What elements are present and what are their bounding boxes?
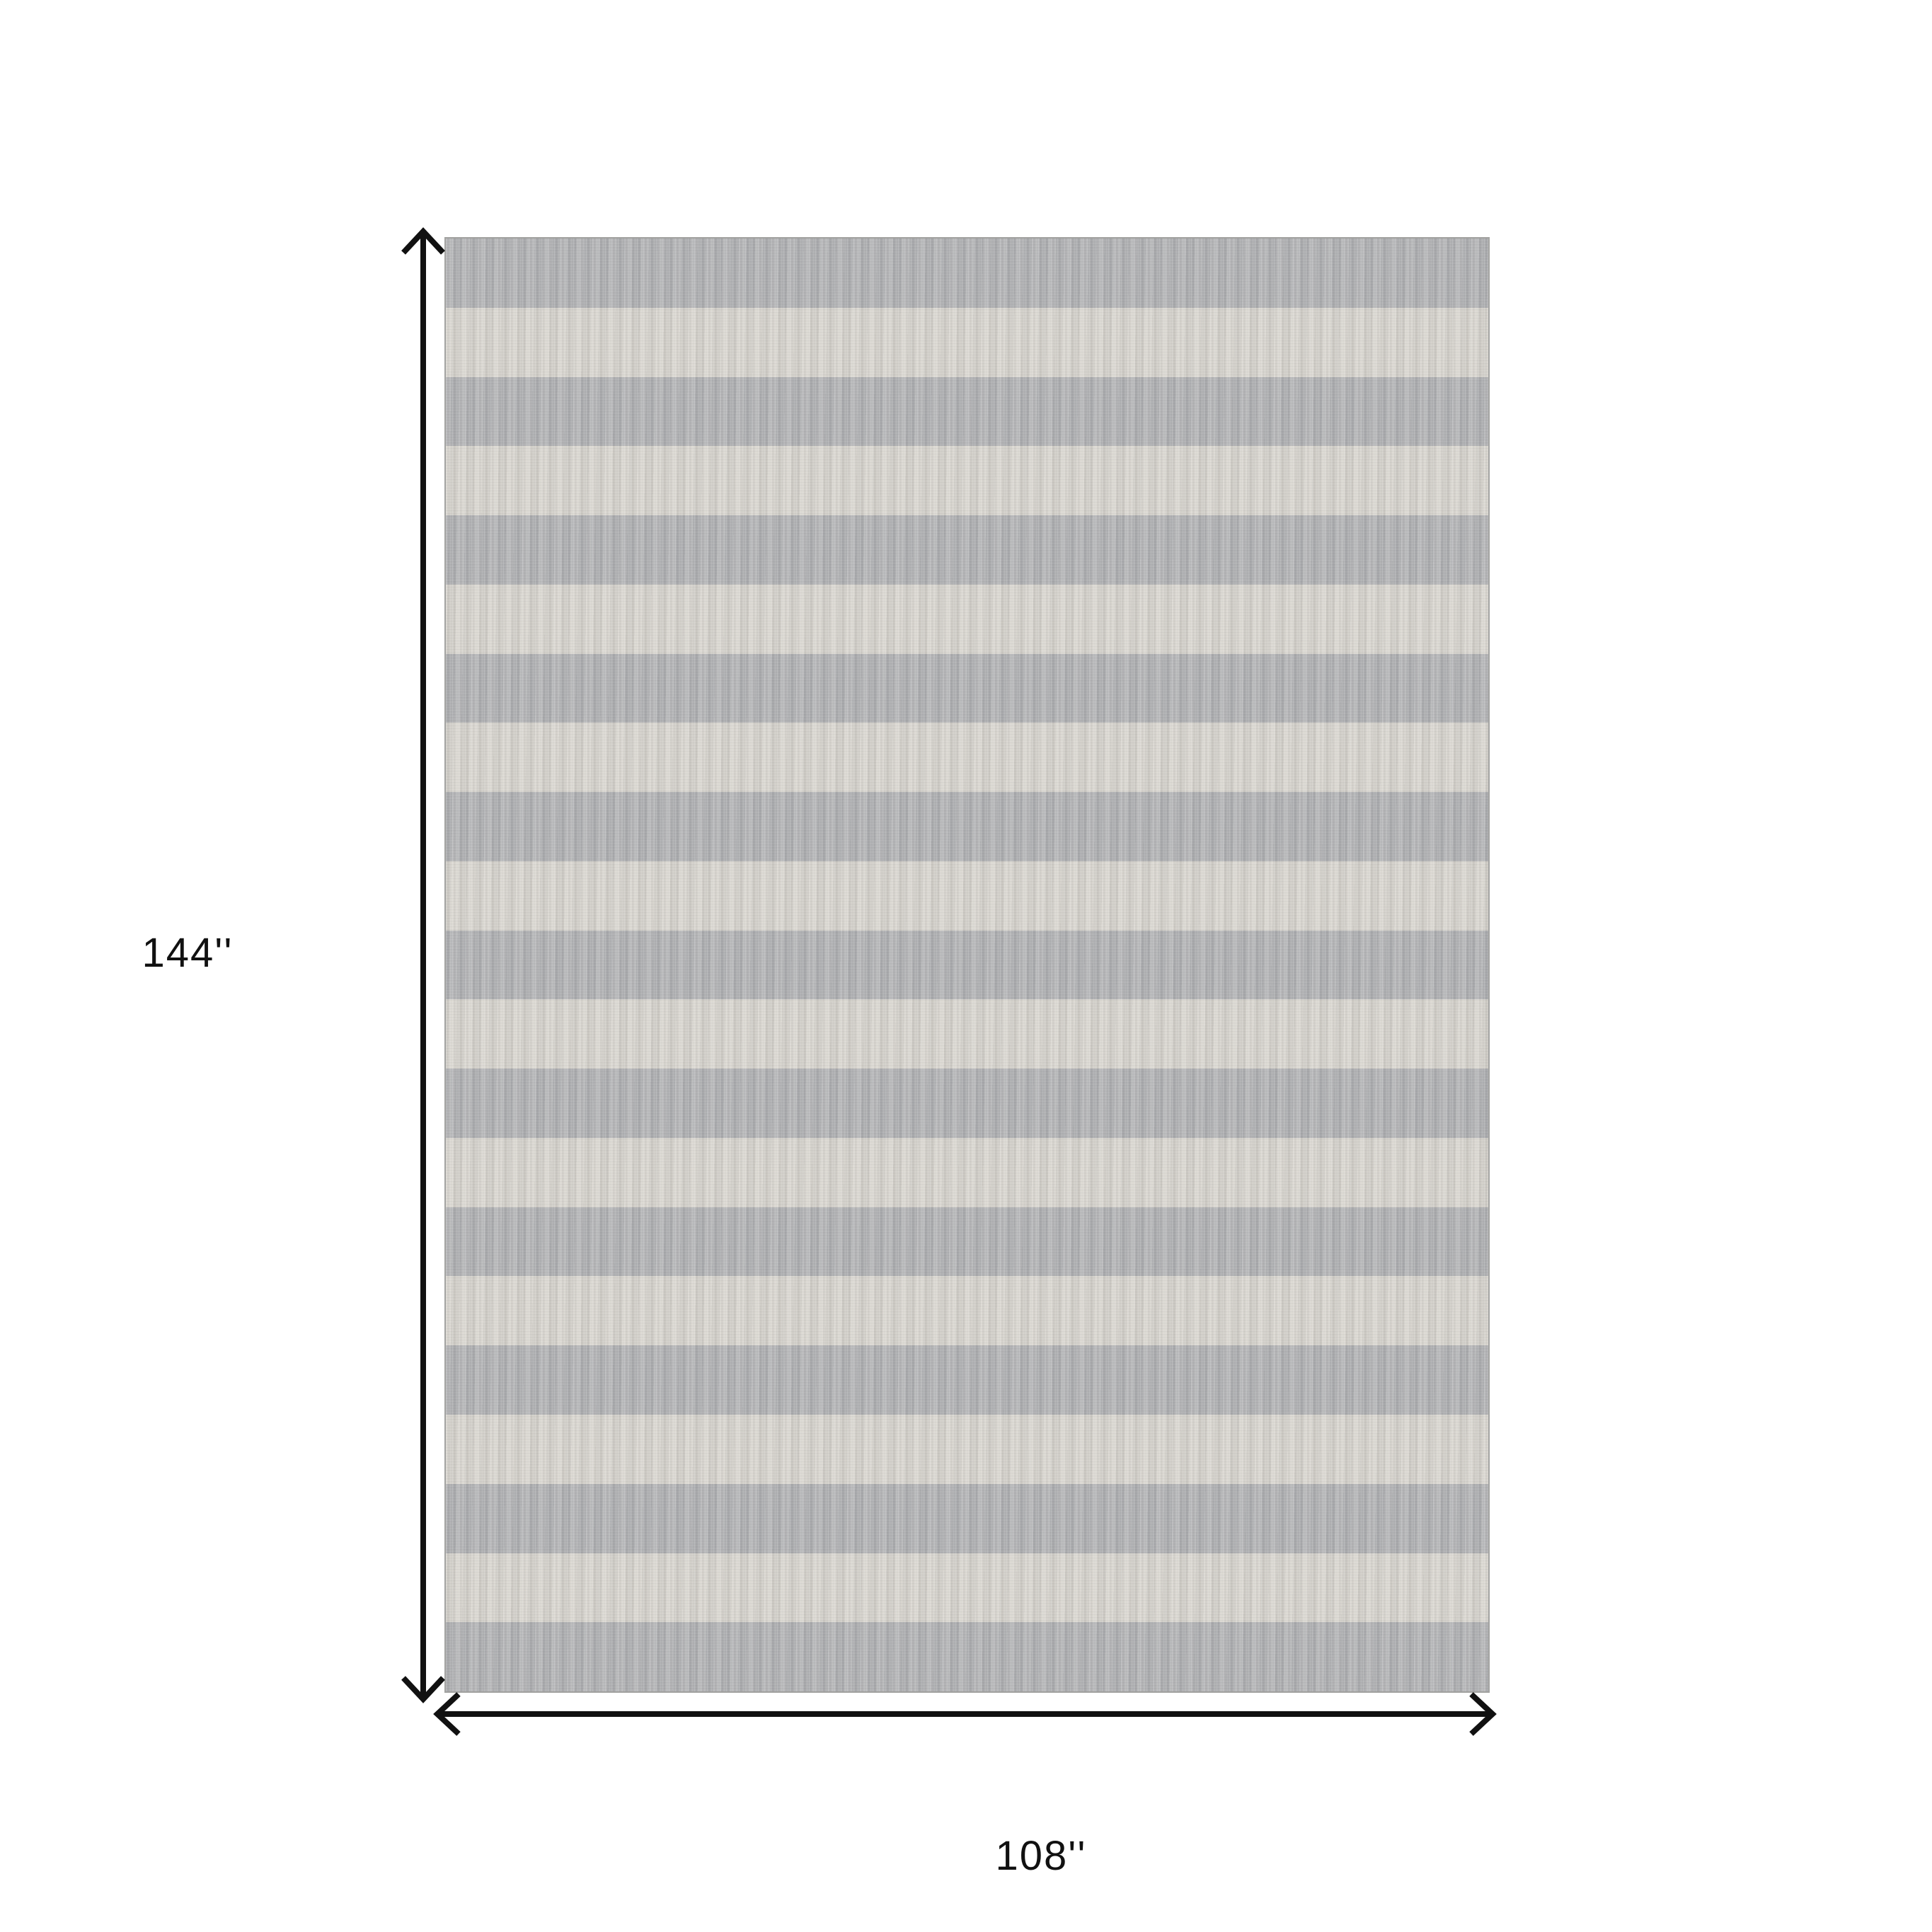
width-dimension-label: 108'' [945,1836,1137,1877]
product-dimension-diagram: 144'' 108'' [0,0,1932,1932]
height-dimension-label: 144'' [92,933,283,974]
dimension-arrows [0,0,1932,1932]
